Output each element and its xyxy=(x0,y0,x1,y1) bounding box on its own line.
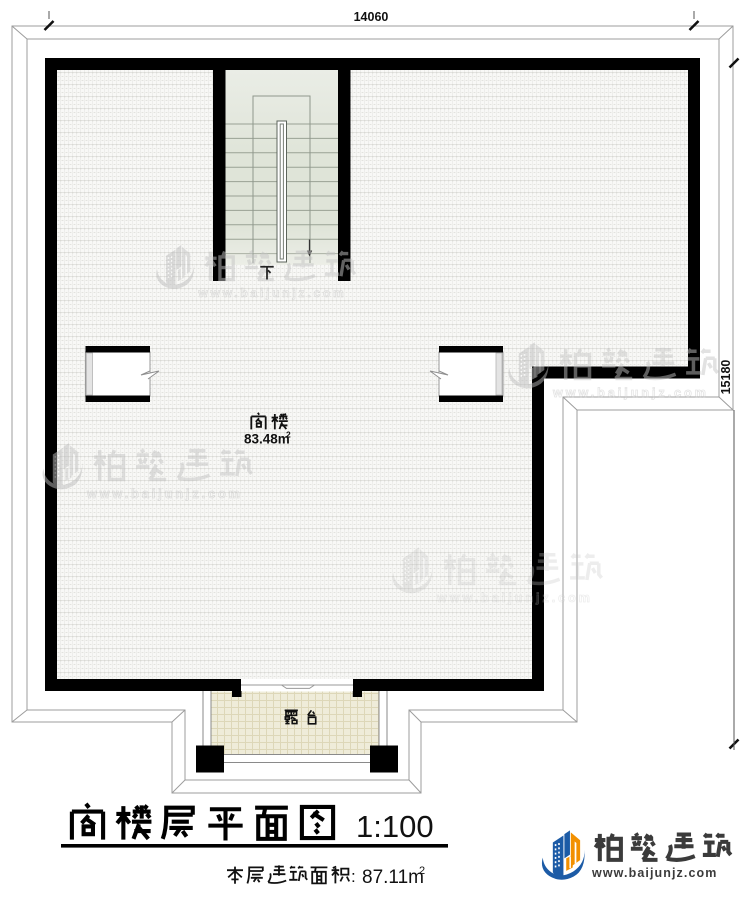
svg-text:1:100: 1:100 xyxy=(356,809,434,844)
svg-text:www.baijunjz.com: www.baijunjz.com xyxy=(591,866,717,880)
svg-text::: : xyxy=(351,867,356,886)
svg-text:14060: 14060 xyxy=(354,10,389,24)
svg-text:15180: 15180 xyxy=(719,360,733,395)
svg-text:83.48m: 83.48m xyxy=(244,432,290,447)
svg-text:87.11m: 87.11m xyxy=(362,867,424,888)
svg-text:2: 2 xyxy=(286,430,291,440)
svg-text:2: 2 xyxy=(419,865,425,877)
